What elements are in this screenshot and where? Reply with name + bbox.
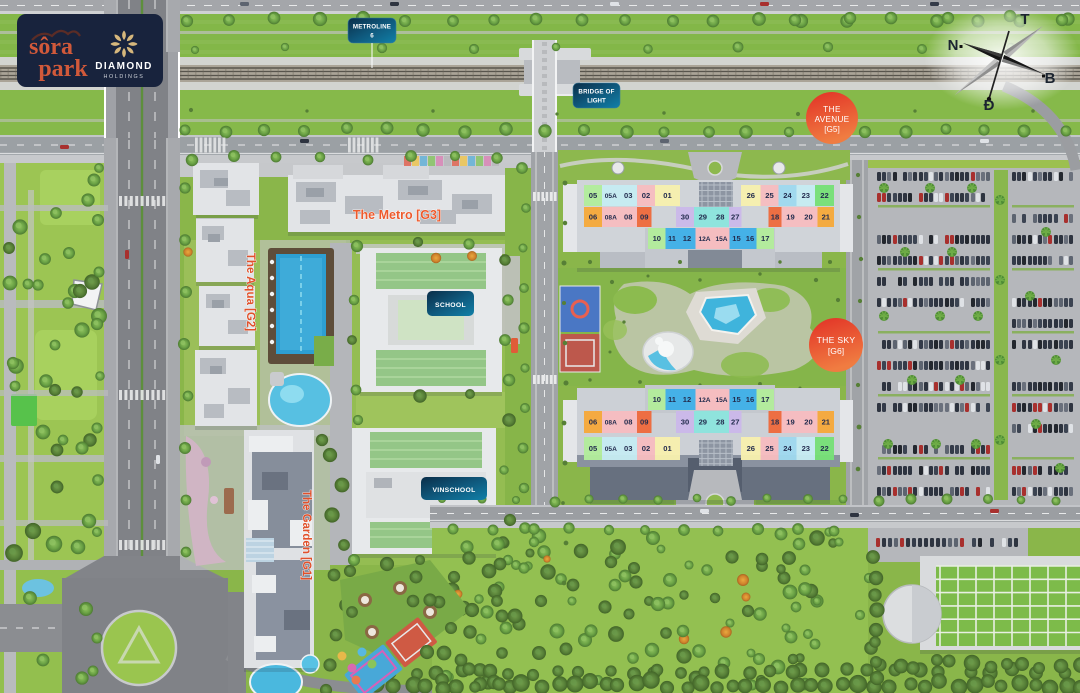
svg-text:02: 02 [642, 444, 650, 453]
svg-text:09: 09 [640, 213, 648, 222]
svg-text:12: 12 [683, 234, 691, 243]
svg-text:12A: 12A [698, 397, 710, 404]
svg-text:21: 21 [822, 418, 831, 427]
svg-text:AVENUE: AVENUE [815, 115, 850, 124]
svg-text:23: 23 [802, 191, 810, 200]
svg-text:16: 16 [746, 395, 754, 404]
svg-text:[G5]: [G5] [824, 125, 839, 134]
svg-text:THE SKY: THE SKY [817, 335, 856, 345]
svg-text:22: 22 [820, 191, 828, 200]
svg-text:08A: 08A [605, 215, 617, 222]
svg-text:05A: 05A [605, 446, 617, 453]
svg-text:05A: 05A [605, 193, 617, 200]
svg-text:25: 25 [765, 444, 774, 453]
svg-text:T: T [1020, 11, 1029, 28]
svg-text:19: 19 [786, 418, 794, 427]
svg-text:06: 06 [589, 418, 597, 427]
svg-text:21: 21 [822, 213, 831, 222]
svg-text:08: 08 [624, 418, 632, 427]
svg-text:20: 20 [804, 213, 812, 222]
svg-text:24: 24 [783, 444, 792, 453]
svg-text:18: 18 [771, 213, 779, 222]
svg-text:20: 20 [804, 418, 812, 427]
svg-text:[G6]: [G6] [828, 346, 844, 356]
svg-text:17: 17 [761, 395, 769, 404]
svg-text:VINSCHOOL: VINSCHOOL [432, 487, 475, 494]
svg-text:26: 26 [747, 191, 755, 200]
svg-text:30: 30 [681, 213, 689, 222]
svg-text:17: 17 [761, 234, 769, 243]
svg-text:23: 23 [802, 444, 810, 453]
svg-text:25: 25 [765, 191, 774, 200]
svg-text:19: 19 [786, 213, 794, 222]
svg-text:30: 30 [681, 418, 689, 427]
svg-text:METROLINE: METROLINE [353, 24, 391, 31]
svg-text:6: 6 [370, 33, 374, 40]
svg-text:03: 03 [624, 191, 632, 200]
svg-text:12A: 12A [698, 236, 710, 243]
svg-text:HOLDINGS: HOLDINGS [104, 74, 145, 80]
svg-text:26: 26 [747, 444, 755, 453]
svg-text:LIGHT: LIGHT [587, 98, 606, 105]
svg-text:The Aqua [G2]: The Aqua [G2] [244, 253, 256, 331]
svg-text:28: 28 [716, 213, 724, 222]
svg-text:Đ: Đ [984, 97, 995, 114]
svg-text:02: 02 [642, 191, 650, 200]
svg-text:08: 08 [624, 213, 632, 222]
svg-text:16: 16 [746, 234, 754, 243]
svg-text:24: 24 [783, 191, 792, 200]
svg-text:15: 15 [732, 234, 741, 243]
svg-text:27: 27 [731, 418, 739, 427]
svg-text:03: 03 [624, 444, 632, 453]
svg-text:22: 22 [820, 444, 828, 453]
svg-text:The Metro [G3]: The Metro [G3] [353, 208, 441, 222]
svg-text:09: 09 [640, 418, 648, 427]
svg-text:N: N [948, 37, 959, 54]
svg-text:The Garden [G1]: The Garden [G1] [300, 490, 312, 580]
svg-text:THE: THE [823, 105, 841, 114]
svg-text:05: 05 [589, 444, 598, 453]
svg-text:05: 05 [589, 191, 598, 200]
svg-text:29: 29 [699, 213, 707, 222]
svg-text:01: 01 [663, 191, 672, 200]
svg-text:15: 15 [732, 395, 741, 404]
svg-text:DIAMOND: DIAMOND [95, 61, 153, 72]
svg-text:11: 11 [668, 234, 677, 243]
svg-text:18: 18 [771, 418, 779, 427]
svg-text:27: 27 [731, 213, 739, 222]
svg-text:11: 11 [668, 395, 677, 404]
svg-text:01: 01 [663, 444, 672, 453]
svg-text:15A: 15A [715, 397, 727, 404]
svg-text:28: 28 [716, 418, 724, 427]
svg-text:SCHOOL: SCHOOL [435, 302, 466, 309]
svg-text:B: B [1045, 70, 1056, 87]
svg-text:08A: 08A [605, 420, 617, 427]
svg-text:15A: 15A [715, 236, 727, 243]
svg-text:park: park [38, 56, 88, 82]
svg-text:BRIDGE OF: BRIDGE OF [578, 89, 614, 96]
svg-text:29: 29 [699, 418, 707, 427]
svg-text:12: 12 [683, 395, 691, 404]
svg-text:10: 10 [653, 234, 661, 243]
svg-text:10: 10 [653, 395, 661, 404]
svg-text:06: 06 [589, 213, 597, 222]
